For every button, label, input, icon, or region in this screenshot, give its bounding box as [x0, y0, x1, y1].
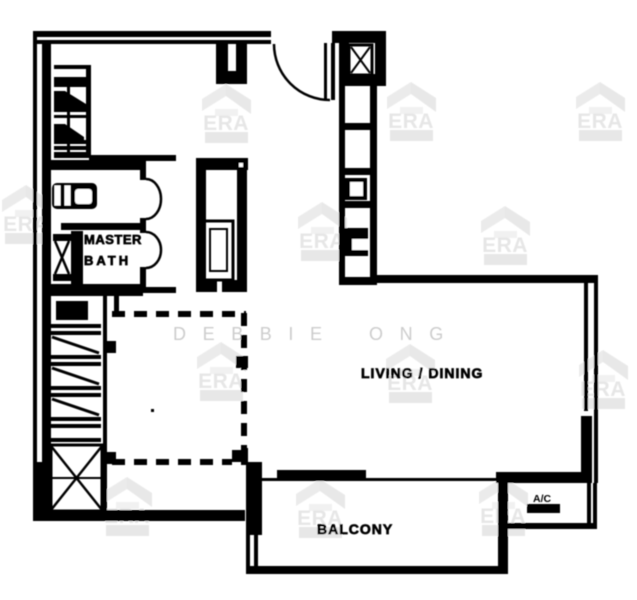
svg-text:A/C: A/C: [533, 493, 552, 505]
svg-text:MASTER: MASTER: [84, 232, 142, 247]
svg-text:DEBBIE: DEBBIE: [173, 324, 339, 344]
svg-text:LIVING / DINING: LIVING / DINING: [361, 365, 483, 381]
svg-text:ONG: ONG: [369, 324, 460, 344]
svg-text:BATH: BATH: [84, 253, 131, 268]
svg-text:BALCONY: BALCONY: [317, 521, 393, 537]
